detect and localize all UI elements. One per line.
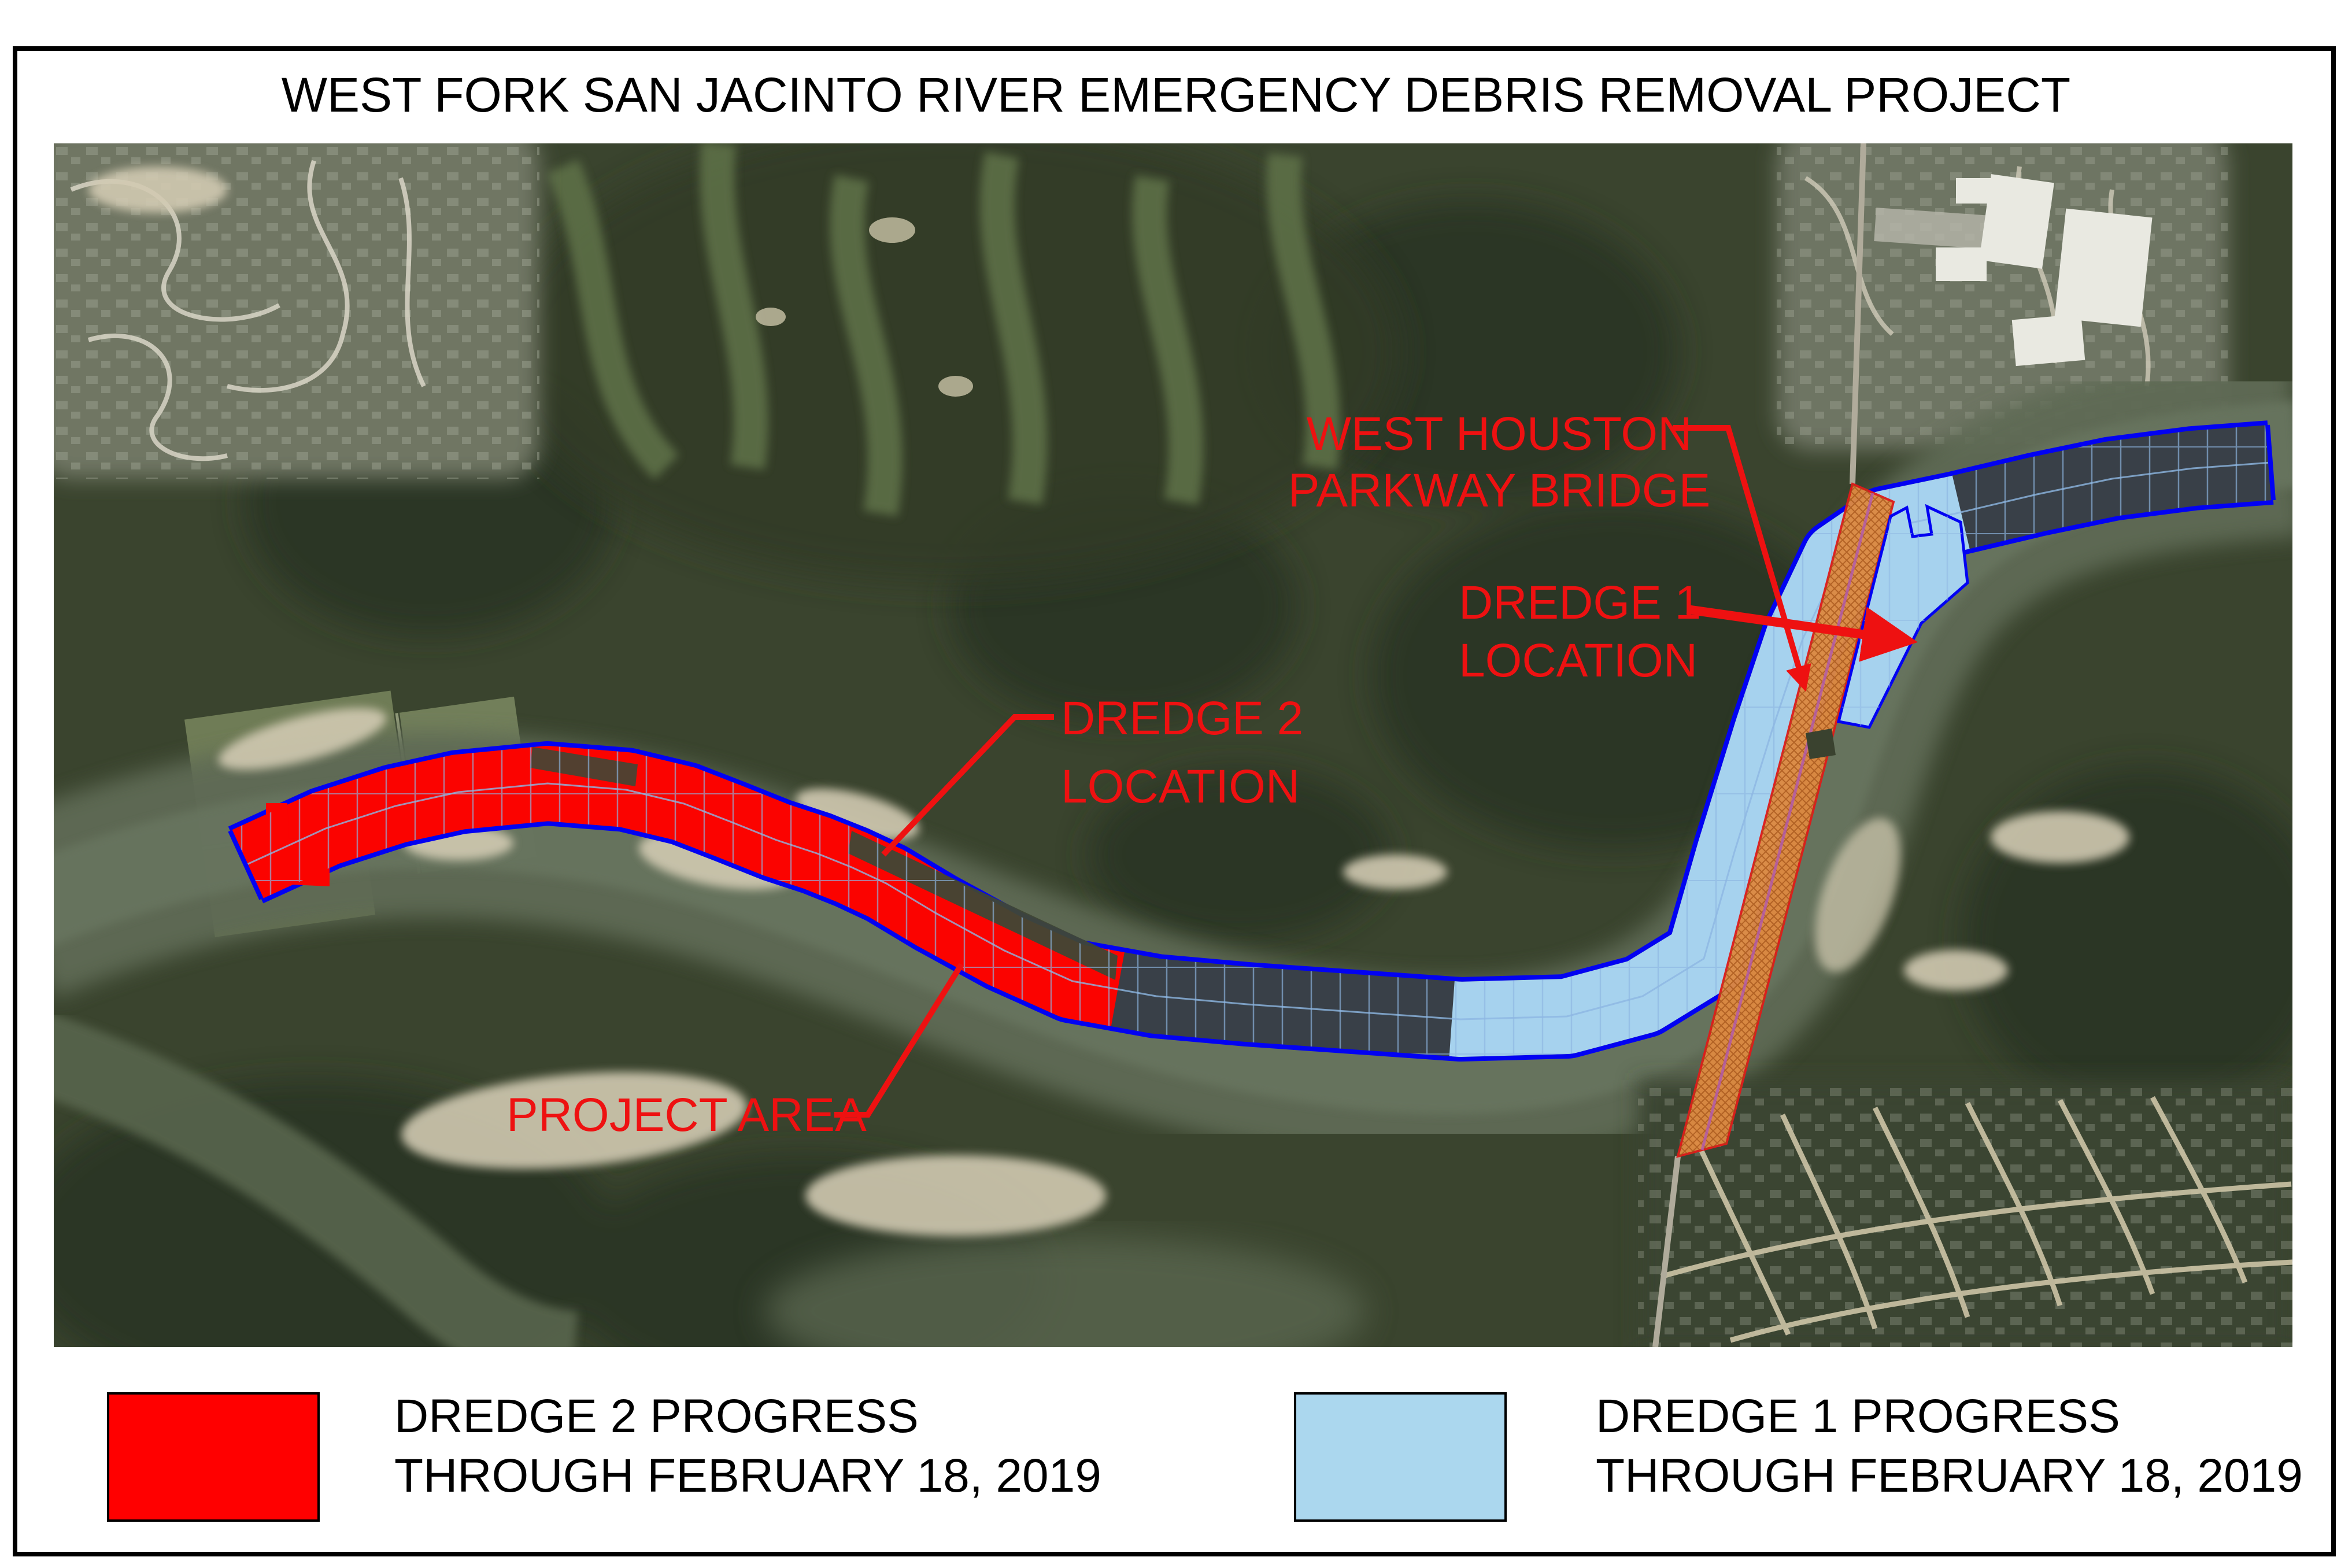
legend-dredge2-line1: DREDGE 2 PROGRESS (394, 1386, 1101, 1446)
dredge1-label-line2: LOCATION (1459, 634, 1698, 687)
project-area-label: PROJECT AREA (506, 1089, 867, 1141)
legend-dredge1-line1: DREDGE 1 PROGRESS (1596, 1386, 2303, 1446)
dredge1-label-line1: DREDGE 1 (1459, 576, 1701, 629)
legend-swatch-dredge1 (1294, 1392, 1507, 1522)
legend-swatch-dredge2 (107, 1392, 320, 1522)
dredge2-label-line1: DREDGE 2 (1061, 692, 1303, 745)
legend-dredge1-line2: THROUGH FEBRUARY 18, 2019 (1596, 1446, 2303, 1506)
page: WEST FORK SAN JACINTO RIVER EMERGENCY DE… (0, 0, 2352, 1568)
legend-label-dredge2: DREDGE 2 PROGRESS THROUGH FEBRUARY 18, 2… (394, 1386, 1101, 1506)
neighborhood-se (1638, 1080, 2292, 1347)
legend-dredge2-line2: THROUGH FEBRUARY 18, 2019 (394, 1446, 1101, 1506)
bridge-label-line1: WEST HOUSTON (1307, 408, 1692, 460)
bridge-foot-notch (1806, 728, 1836, 759)
terrain (54, 143, 2292, 1347)
satellite-map: WEST HOUSTON PARKWAY BRIDGE DREDGE 1 LOC… (54, 143, 2292, 1347)
legend-label-dredge1: DREDGE 1 PROGRESS THROUGH FEBRUARY 18, 2… (1596, 1386, 2303, 1506)
page-title: WEST FORK SAN JACINTO RIVER EMERGENCY DE… (0, 67, 2352, 123)
dredge2-label-line2: LOCATION (1061, 760, 1300, 813)
bridge-label-line2: PARKWAY BRIDGE (1288, 464, 1711, 517)
